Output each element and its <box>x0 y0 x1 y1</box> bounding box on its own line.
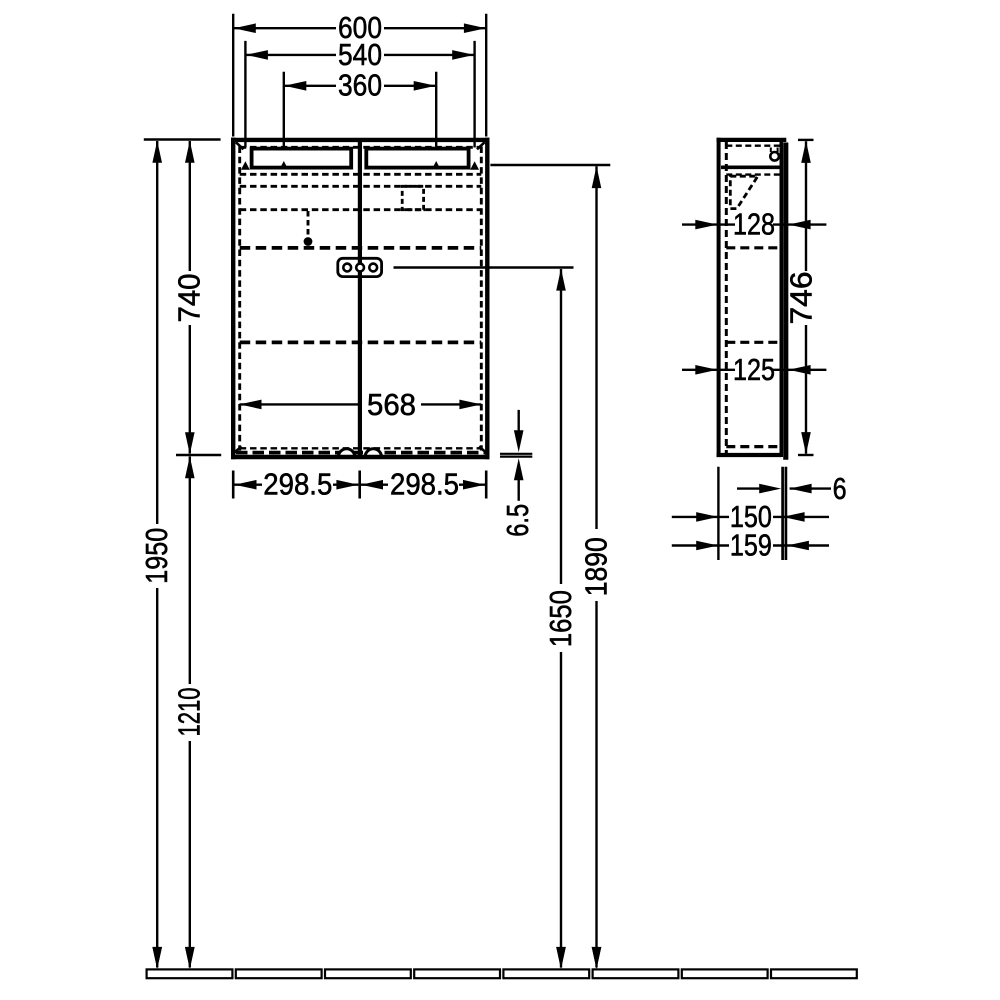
svg-text:1210: 1210 <box>172 688 207 737</box>
svg-text:568: 568 <box>367 387 416 422</box>
svg-text:1890: 1890 <box>578 537 613 596</box>
svg-text:740: 740 <box>172 274 207 323</box>
svg-text:1650: 1650 <box>543 590 578 647</box>
svg-text:128: 128 <box>733 207 775 242</box>
svg-text:1950: 1950 <box>139 528 174 584</box>
svg-text:6.5: 6.5 <box>500 504 535 537</box>
svg-text:6: 6 <box>833 471 847 506</box>
svg-text:746: 746 <box>784 272 819 325</box>
svg-text:360: 360 <box>338 68 382 103</box>
svg-text:298.5: 298.5 <box>390 467 459 502</box>
svg-text:125: 125 <box>733 352 775 387</box>
svg-text:298.5: 298.5 <box>263 467 332 502</box>
svg-text:540: 540 <box>338 37 382 72</box>
svg-text:159: 159 <box>730 528 772 563</box>
